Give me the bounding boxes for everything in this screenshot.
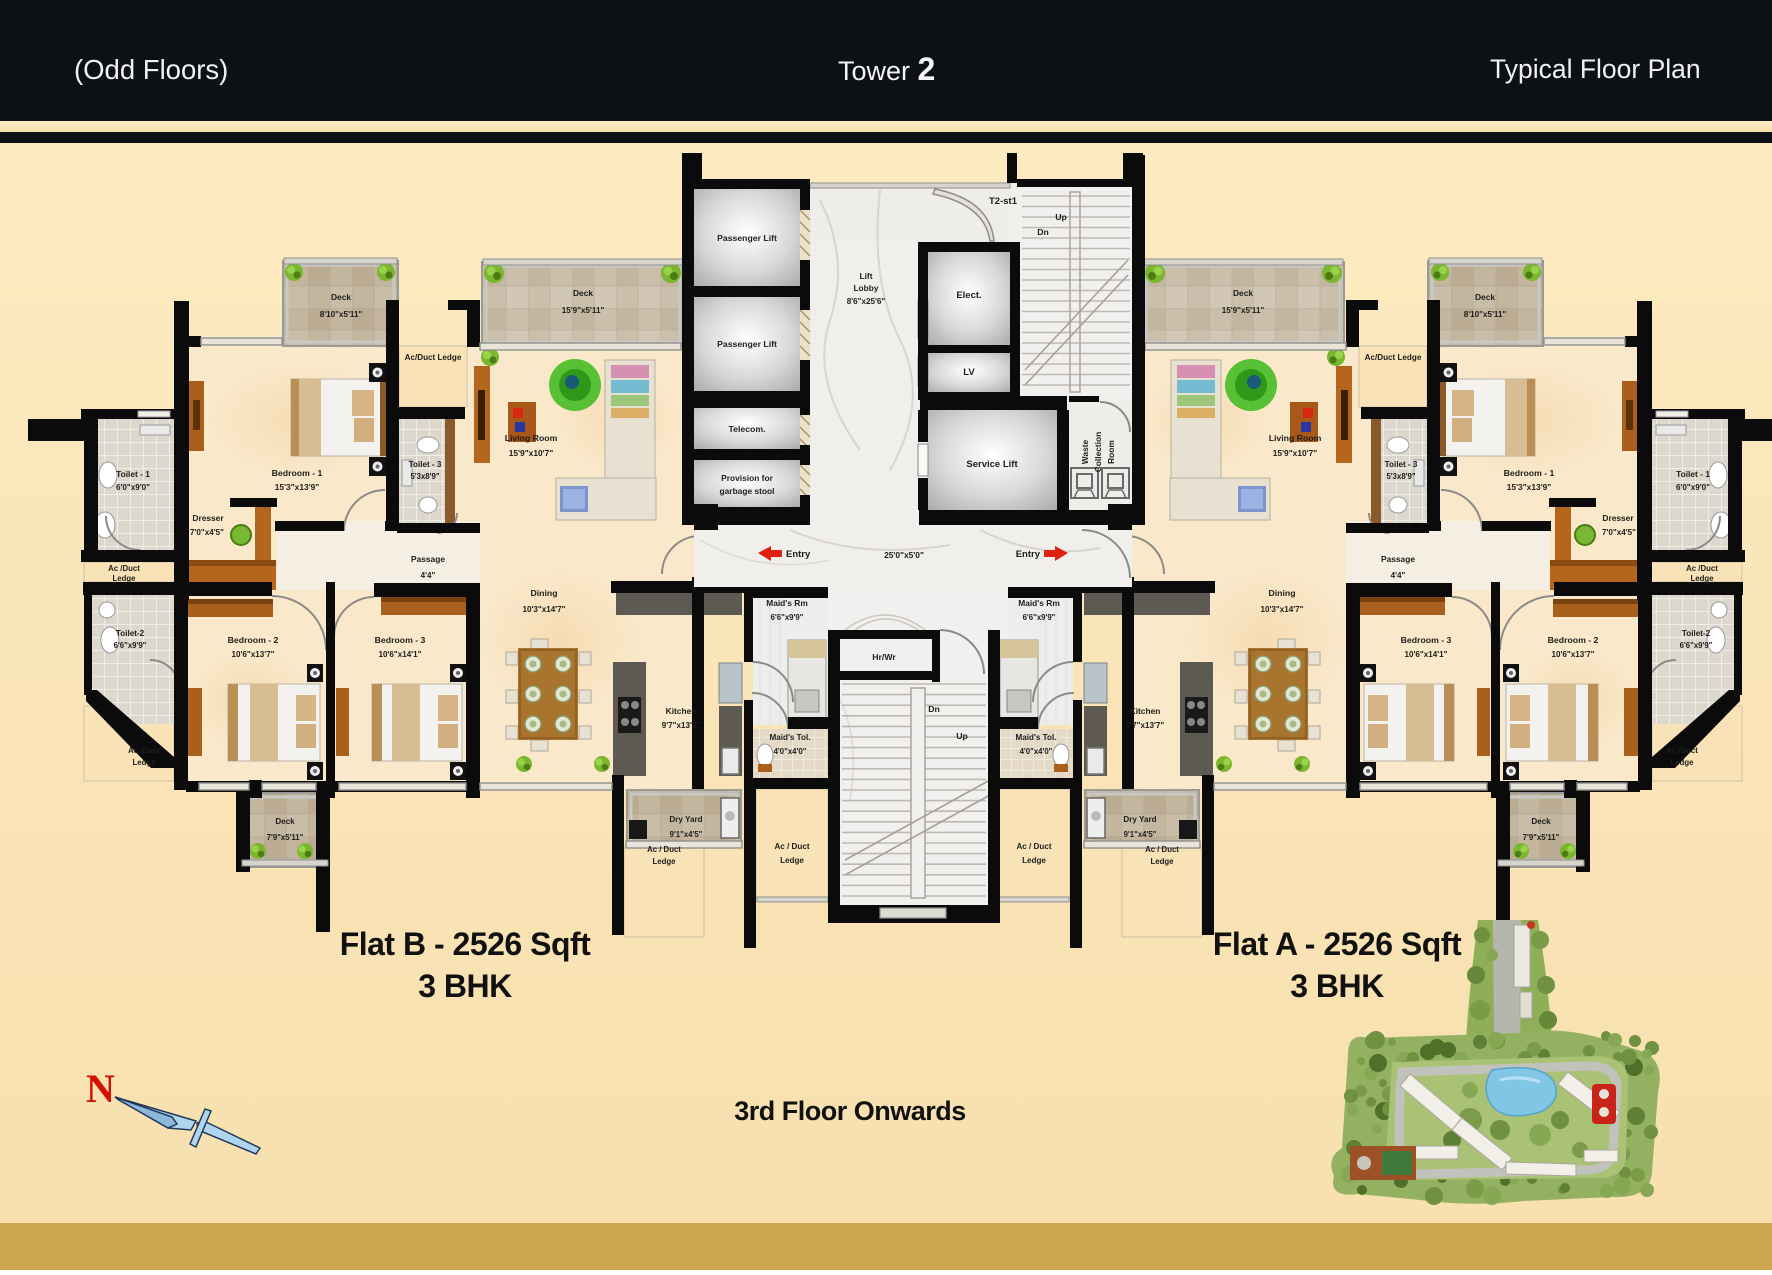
svg-text:9'1"x4'5": 9'1"x4'5" [1124,830,1157,839]
svg-text:Toilet - 3: Toilet - 3 [1385,460,1418,469]
svg-text:Ledge: Ledge [780,856,804,865]
svg-text:4'4": 4'4" [421,571,436,580]
svg-text:Waste: Waste [1080,439,1090,464]
svg-text:Flat B - 2526 Sqft: Flat B - 2526 Sqft [340,926,591,962]
svg-text:Dn: Dn [1037,227,1049,237]
svg-text:5'3x8'9": 5'3x8'9" [410,472,439,481]
svg-text:Bedroom - 3: Bedroom - 3 [1401,635,1452,645]
svg-text:Toilet - 1: Toilet - 1 [116,469,150,479]
svg-text:8'10"x5'11": 8'10"x5'11" [320,310,363,319]
svg-text:Deck: Deck [331,292,351,302]
svg-text:4'0"x4'0": 4'0"x4'0" [1020,747,1053,756]
svg-text:Dining: Dining [530,588,557,598]
svg-text:Up: Up [956,731,968,741]
svg-text:15'3"x13'9": 15'3"x13'9" [275,482,320,492]
svg-text:Dresser: Dresser [1602,513,1634,523]
svg-text:3 BHK: 3 BHK [1290,968,1384,1004]
svg-text:Bedroom - 1: Bedroom - 1 [1504,468,1555,478]
svg-text:6'0"x9'0": 6'0"x9'0" [1676,483,1710,492]
svg-text:Deck: Deck [1475,292,1495,302]
svg-text:5'3x8'9": 5'3x8'9" [1386,472,1415,481]
svg-text:15'9"x10'7": 15'9"x10'7" [1273,448,1318,458]
svg-text:Maid's Tol.: Maid's Tol. [1016,733,1057,742]
svg-text:Passenger Lift: Passenger Lift [717,339,777,349]
svg-text:Dresser: Dresser [192,513,224,523]
svg-text:4'0"x4'0": 4'0"x4'0" [774,747,807,756]
svg-text:Ac / Duct: Ac / Duct [647,845,681,854]
svg-text:6'6"x9'9": 6'6"x9'9" [771,613,804,622]
svg-text:15'9"x5'11": 15'9"x5'11" [1222,306,1265,315]
svg-text:Entry: Entry [786,549,811,560]
svg-text:Ledge: Ledge [1022,856,1046,865]
svg-text:Deck: Deck [275,817,295,826]
svg-text:Toilet-2: Toilet-2 [116,629,145,638]
svg-text:Ac / Duct: Ac / Duct [1145,845,1179,854]
svg-text:7'9"x5'11": 7'9"x5'11" [1523,833,1560,842]
svg-text:Deck: Deck [1531,817,1551,826]
svg-text:Deck: Deck [1233,288,1253,298]
svg-text:Lift: Lift [859,271,872,281]
svg-text:3rd Floor Onwards: 3rd Floor Onwards [734,1096,966,1126]
svg-text:Ac /Duct: Ac /Duct [1686,564,1718,573]
svg-text:10'3"x14'7": 10'3"x14'7" [1260,605,1303,614]
svg-text:Ledge: Ledge [133,758,157,767]
svg-text:Ledge: Ledge [113,574,137,583]
svg-text:7'9"x5'11": 7'9"x5'11" [267,833,304,842]
svg-text:6'6"x9'9": 6'6"x9'9" [114,641,147,650]
svg-text:N: N [86,1066,115,1111]
svg-text:garbage stool: garbage stool [720,486,775,496]
svg-text:Toilet-2: Toilet-2 [1682,629,1711,638]
svg-text:Collection: Collection [1093,432,1103,472]
svg-text:Room: Room [1106,440,1116,464]
svg-text:Ac / Duct: Ac / Duct [1016,842,1051,851]
svg-text:7'0"x4'5": 7'0"x4'5" [1602,528,1636,537]
svg-text:Typical Floor Plan: Typical Floor Plan [1490,54,1701,84]
svg-text:Passage: Passage [1381,554,1415,564]
svg-text:Kitchen: Kitchen [1130,706,1161,716]
svg-text:Ledge: Ledge [1691,574,1715,583]
svg-text:Elect.: Elect. [956,290,981,301]
svg-text:Ac/Duct Ledge: Ac/Duct Ledge [1365,353,1422,362]
svg-text:Toilet - 3: Toilet - 3 [409,460,442,469]
svg-text:10'6"x14'1": 10'6"x14'1" [378,650,421,659]
svg-text:Dining: Dining [1268,588,1295,598]
svg-text:9'7"x13'7": 9'7"x13'7" [1126,721,1165,730]
svg-text:Ledge: Ledge [653,857,677,866]
svg-text:Flat A - 2526 Sqft: Flat A - 2526 Sqft [1213,926,1462,962]
svg-text:8'10"x5'11": 8'10"x5'11" [1464,310,1507,319]
svg-text:3 BHK: 3 BHK [418,968,512,1004]
svg-text:Kitchen: Kitchen [666,706,697,716]
svg-text:Ac /Duct: Ac /Duct [128,746,160,755]
svg-text:Dry Yard: Dry Yard [669,815,702,824]
svg-text:Ac /Duct: Ac /Duct [108,564,140,573]
svg-text:9'1"x4'5": 9'1"x4'5" [670,830,703,839]
svg-text:Entry: Entry [1016,549,1041,560]
svg-text:Tower 2: Tower 2 [838,51,935,87]
svg-text:Maid's Tol.: Maid's Tol. [770,733,811,742]
svg-text:Toilet - 1: Toilet - 1 [1676,469,1710,479]
svg-text:6'6"x9'9": 6'6"x9'9" [1023,613,1056,622]
svg-text:Maid's Rm: Maid's Rm [766,598,808,608]
svg-text:T2-st1: T2-st1 [989,196,1018,207]
svg-text:4'4": 4'4" [1391,571,1406,580]
svg-text:Ac/Duct Ledge: Ac/Duct Ledge [405,353,462,362]
svg-text:Provision for: Provision for [721,473,773,483]
svg-text:Dn: Dn [928,704,940,714]
svg-text:Service Lift: Service Lift [966,459,1018,470]
svg-text:15'9"x10'7": 15'9"x10'7" [509,448,554,458]
svg-text:Deck: Deck [573,288,593,298]
svg-text:10'6"x14'1": 10'6"x14'1" [1404,650,1447,659]
svg-text:15'9"x5'11": 15'9"x5'11" [562,306,605,315]
svg-text:Bedroom - 2: Bedroom - 2 [1548,635,1599,645]
svg-text:Lobby: Lobby [853,283,878,293]
svg-text:9'7"x13'7": 9'7"x13'7" [662,721,701,730]
svg-text:6'0"x9'0": 6'0"x9'0" [116,483,150,492]
svg-text:Ledge: Ledge [1671,758,1695,767]
svg-text:Passage: Passage [411,554,445,564]
svg-text:25'0"x5'0": 25'0"x5'0" [884,550,924,560]
svg-text:LV: LV [963,367,975,378]
svg-text:10'6"x13'7": 10'6"x13'7" [231,650,274,659]
svg-text:Ledge: Ledge [1151,857,1175,866]
svg-text:Maid's Rm: Maid's Rm [1018,598,1060,608]
svg-text:Living Room: Living Room [1269,433,1322,443]
svg-text:Ac /Duct: Ac /Duct [1666,746,1698,755]
svg-text:Hr/Wr: Hr/Wr [872,652,896,662]
svg-text:Living Room: Living Room [505,433,558,443]
svg-text:10'6"x13'7": 10'6"x13'7" [1551,650,1594,659]
svg-text:Ac / Duct: Ac / Duct [774,842,809,851]
svg-text:10'3"x14'7": 10'3"x14'7" [522,605,565,614]
svg-text:(Odd Floors): (Odd Floors) [74,54,228,85]
svg-text:6'6"x9'9": 6'6"x9'9" [1680,641,1713,650]
svg-text:Dry Yard: Dry Yard [1123,815,1156,824]
svg-text:Bedroom - 3: Bedroom - 3 [375,635,426,645]
svg-text:Telecom.: Telecom. [728,424,765,434]
svg-text:Bedroom - 2: Bedroom - 2 [228,635,279,645]
svg-text:Up: Up [1055,212,1067,222]
svg-text:8'6"x25'6": 8'6"x25'6" [847,297,886,306]
svg-text:7'0"x4'5": 7'0"x4'5" [190,528,224,537]
svg-text:15'3"x13'9": 15'3"x13'9" [1507,482,1552,492]
svg-text:Bedroom - 1: Bedroom - 1 [272,468,323,478]
svg-text:Passenger Lift: Passenger Lift [717,233,777,243]
